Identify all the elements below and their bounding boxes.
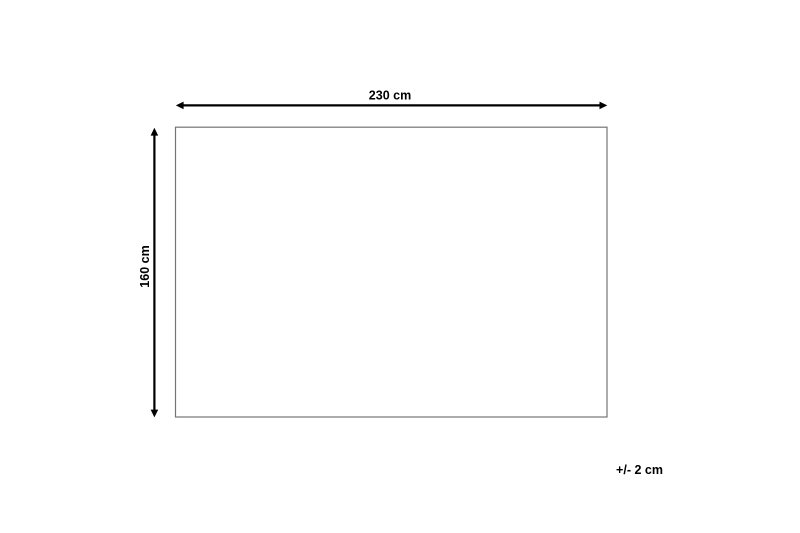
- svg-text:+/- 2 cm: +/- 2 cm: [616, 463, 663, 477]
- svg-text:160 cm: 160 cm: [138, 245, 152, 287]
- svg-text:230 cm: 230 cm: [369, 89, 411, 103]
